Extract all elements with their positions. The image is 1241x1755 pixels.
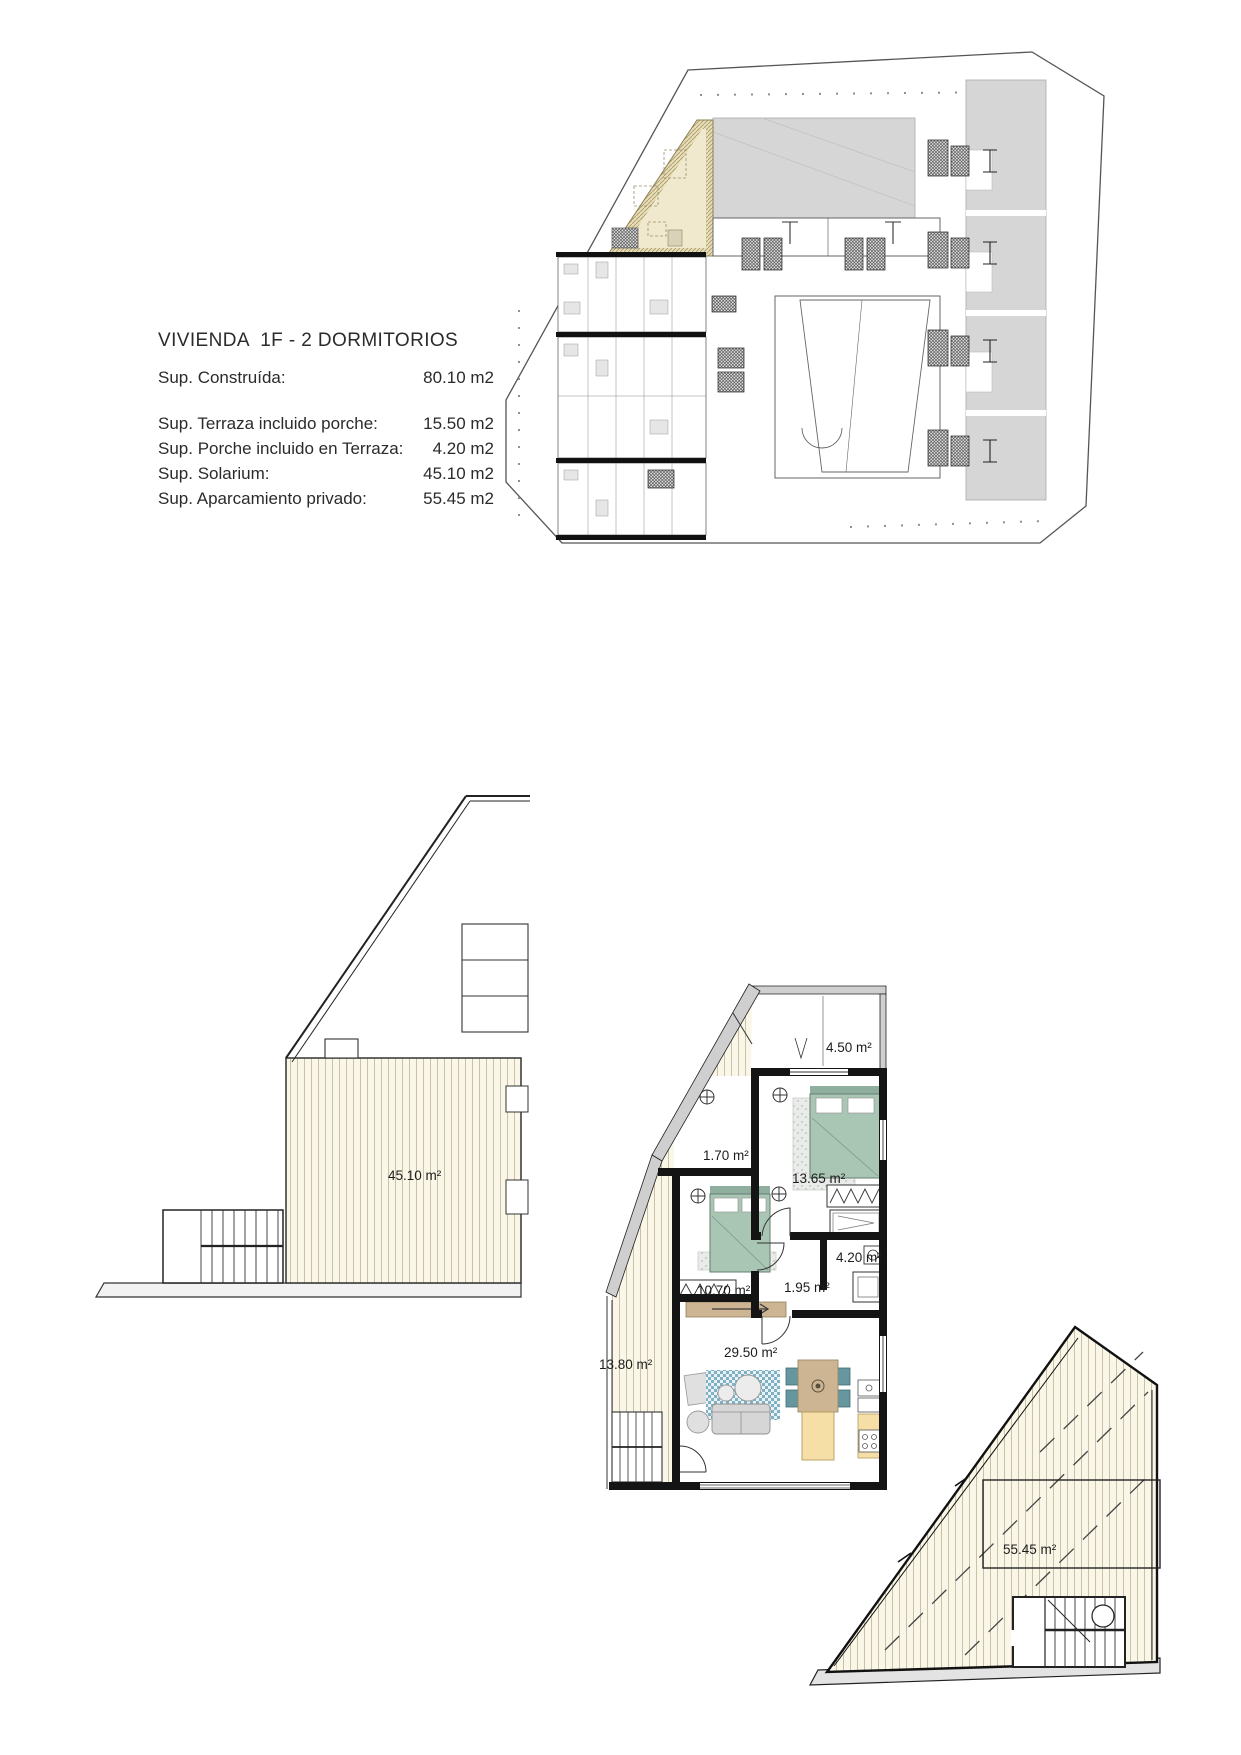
info-row: Sup. Solarium: 45.10 m2 (158, 464, 494, 484)
pergola (462, 924, 528, 1032)
base-slab-edge (96, 1283, 521, 1297)
site-plan-drawing (505, 40, 1110, 550)
info-label: Sup. Construída: (158, 368, 286, 388)
room-area-label: 29.50 m² (724, 1345, 778, 1360)
room-area-label: 13.65 m² (792, 1171, 846, 1186)
info-label: Sup. Solarium: (158, 464, 270, 484)
info-label: Sup. Porche incluido en Terraza: (158, 439, 403, 459)
solarium-plan-drawing: 45.10 m² (90, 690, 530, 1310)
planter (506, 1180, 528, 1214)
room-area-label: 55.45 m² (1003, 1542, 1057, 1557)
bed-symbol-bedroom2 (698, 1186, 776, 1272)
stairs-symbol (163, 1210, 283, 1283)
planter (506, 1086, 528, 1112)
terrace-edge (607, 1296, 612, 1489)
info-row: Sup. Aparcamiento privado: 55.45 m2 (158, 489, 494, 509)
info-value: 45.10 m2 (423, 464, 494, 484)
info-row: Sup. Terraza incluido porche: 15.50 m2 (158, 414, 494, 434)
info-label: Sup. Terraza incluido porche: (158, 414, 378, 434)
stairs-symbol (612, 1412, 662, 1482)
pouf-symbol (687, 1411, 709, 1433)
room-area-label: 4.20 m² (836, 1250, 882, 1265)
unit-info-block: VIVIENDA 1F - 2 DORMITORIOS Sup. Constru… (158, 330, 494, 352)
room-area-label: 13.80 m² (599, 1357, 653, 1372)
info-row: Sup. Construída: 80.10 m2 (158, 368, 494, 388)
room-area-label: 10.70 m² (697, 1283, 751, 1298)
info-label: Sup. Aparcamiento privado: (158, 489, 367, 509)
wardrobe-symbol-bedroom1 (827, 1185, 883, 1236)
room-area-label: 4.50 m² (826, 1040, 872, 1055)
stairs-symbol (1011, 1597, 1125, 1667)
room-area-label: 45.10 m² (388, 1168, 442, 1183)
parking-plan-drawing: 55.45 m² (805, 1315, 1170, 1695)
info-row: Sup. Porche incluido en Terraza: 4.20 m2 (158, 439, 494, 459)
page-title: VIVIENDA 1F - 2 DORMITORIOS (158, 330, 494, 352)
dwelling-rows (556, 252, 706, 540)
top-terrace-floor (751, 995, 881, 1076)
room-area-label: 1.95 m² (784, 1280, 830, 1295)
room-area-label: 1.70 m² (703, 1148, 749, 1163)
sofa-symbol (712, 1404, 770, 1434)
info-value: 4.20 m2 (433, 439, 494, 459)
plan-sheet: VIVIENDA 1F - 2 DORMITORIOS Sup. Constru… (0, 0, 1241, 1755)
info-value: 15.50 m2 (423, 414, 494, 434)
roof-area-top (713, 118, 915, 218)
deck-notch (325, 1039, 358, 1058)
info-value: 55.45 m2 (423, 489, 494, 509)
info-value: 80.10 m2 (423, 368, 494, 388)
sideboard-symbol (686, 1302, 786, 1317)
